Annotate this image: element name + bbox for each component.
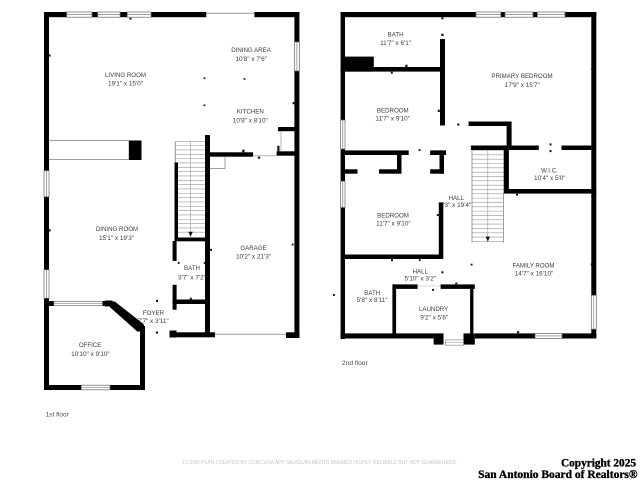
svg-text:DINING AREA: DINING AREA xyxy=(231,47,271,54)
svg-text:14'7" x 16'10": 14'7" x 16'10" xyxy=(515,270,554,277)
svg-text:3'7" x 7'2": 3'7" x 7'2" xyxy=(178,275,206,282)
svg-text:LAUNDRY: LAUNDRY xyxy=(419,306,448,313)
svg-text:9'3" x 19'4": 9'3" x 19'4" xyxy=(440,202,472,209)
svg-text:10'4" x 5'0": 10'4" x 5'0" xyxy=(534,175,566,182)
svg-text:9'2" x 5'6": 9'2" x 5'6" xyxy=(420,315,448,322)
svg-text:Copyright 2025: Copyright 2025 xyxy=(561,458,636,470)
svg-text:BATH: BATH xyxy=(364,290,380,297)
svg-text:San Antonio Board of Realtors®: San Antonio Board of Realtors® xyxy=(478,469,638,480)
svg-text:DINING ROOM: DINING ROOM xyxy=(96,226,138,233)
svg-text:10'8" x 8'10": 10'8" x 8'10" xyxy=(233,118,268,125)
svg-text:GARAGE: GARAGE xyxy=(240,245,266,252)
svg-text:OFFICE: OFFICE xyxy=(79,342,102,349)
svg-text:BATH: BATH xyxy=(184,265,200,272)
svg-text:15'1" x 19'3": 15'1" x 19'3" xyxy=(99,235,134,242)
svg-text:PRIMARY BEDROOM: PRIMARY BEDROOM xyxy=(491,73,552,80)
svg-text:11'7" x 9'10": 11'7" x 9'10" xyxy=(375,116,410,123)
svg-text:5'10" x 3'2": 5'10" x 3'2" xyxy=(405,276,437,283)
svg-text:1st floor: 1st floor xyxy=(46,412,70,419)
svg-text:BATH: BATH xyxy=(388,31,404,38)
svg-text:BEDROOM: BEDROOM xyxy=(377,108,409,115)
svg-text:KITCHEN: KITCHEN xyxy=(237,108,264,115)
svg-text:10'10" x 9'10": 10'10" x 9'10" xyxy=(71,351,110,358)
svg-text:10'8" x 7'6": 10'8" x 7'6" xyxy=(235,56,267,63)
svg-text:19'1" x 15'0": 19'1" x 15'0" xyxy=(108,81,143,88)
svg-text:2nd floor: 2nd floor xyxy=(342,360,368,367)
svg-text:FOYER: FOYER xyxy=(143,310,165,317)
svg-text:10'2" x 21'3": 10'2" x 21'3" xyxy=(236,254,271,261)
svg-text:W.I.C.: W.I.C. xyxy=(541,168,558,175)
svg-text:LIVING ROOM: LIVING ROOM xyxy=(105,72,146,79)
svg-text:11'7" x 9'10": 11'7" x 9'10" xyxy=(376,220,411,227)
svg-text:FAMILY ROOM: FAMILY ROOM xyxy=(512,263,554,270)
svg-text:FLOOR PLAN CREATED BY CUBICASA: FLOOR PLAN CREATED BY CUBICASA APP. MEAS… xyxy=(183,460,458,466)
svg-text:17'9" x 15'7": 17'9" x 15'7" xyxy=(505,82,540,89)
svg-text:HALL: HALL xyxy=(449,195,465,202)
svg-text:HALL: HALL xyxy=(413,269,429,276)
svg-text:BEDROOM: BEDROOM xyxy=(377,213,409,220)
svg-text:11'7" x 6'1": 11'7" x 6'1" xyxy=(380,40,411,47)
svg-text:5'8" x 8'11": 5'8" x 8'11" xyxy=(357,297,388,304)
svg-text:7'7" x 3'11": 7'7" x 3'11" xyxy=(138,318,169,325)
